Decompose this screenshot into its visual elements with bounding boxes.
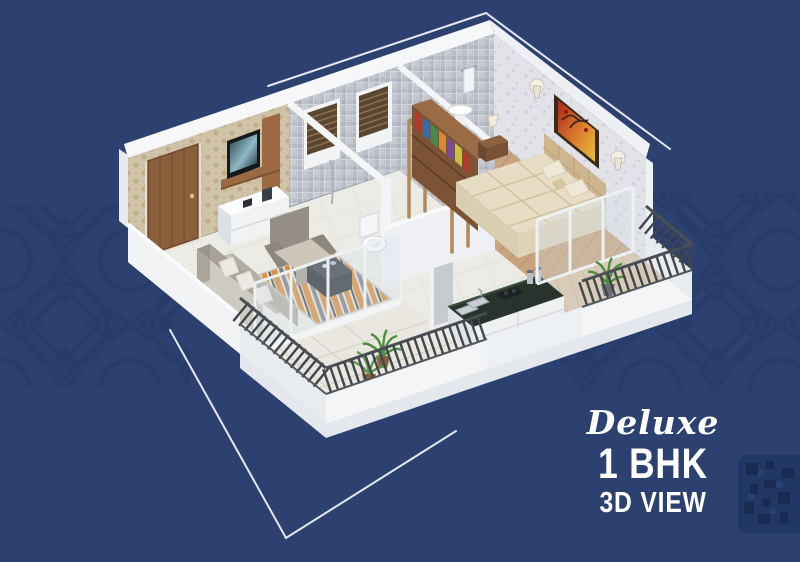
badge-line1: 1 BHK <box>598 443 708 486</box>
property-poster: Deluxe 1 BHK 3D VIEW <box>0 0 800 562</box>
door-knob <box>190 194 194 198</box>
qr-watermark <box>738 455 800 533</box>
badge-script-title: Deluxe <box>586 406 720 439</box>
badge-line2: 3D VIEW <box>599 489 706 518</box>
entrance-door <box>145 143 201 258</box>
title-badge: Deluxe 1 BHK 3D VIEW <box>586 406 720 518</box>
bathroom-window-2 <box>356 81 392 153</box>
